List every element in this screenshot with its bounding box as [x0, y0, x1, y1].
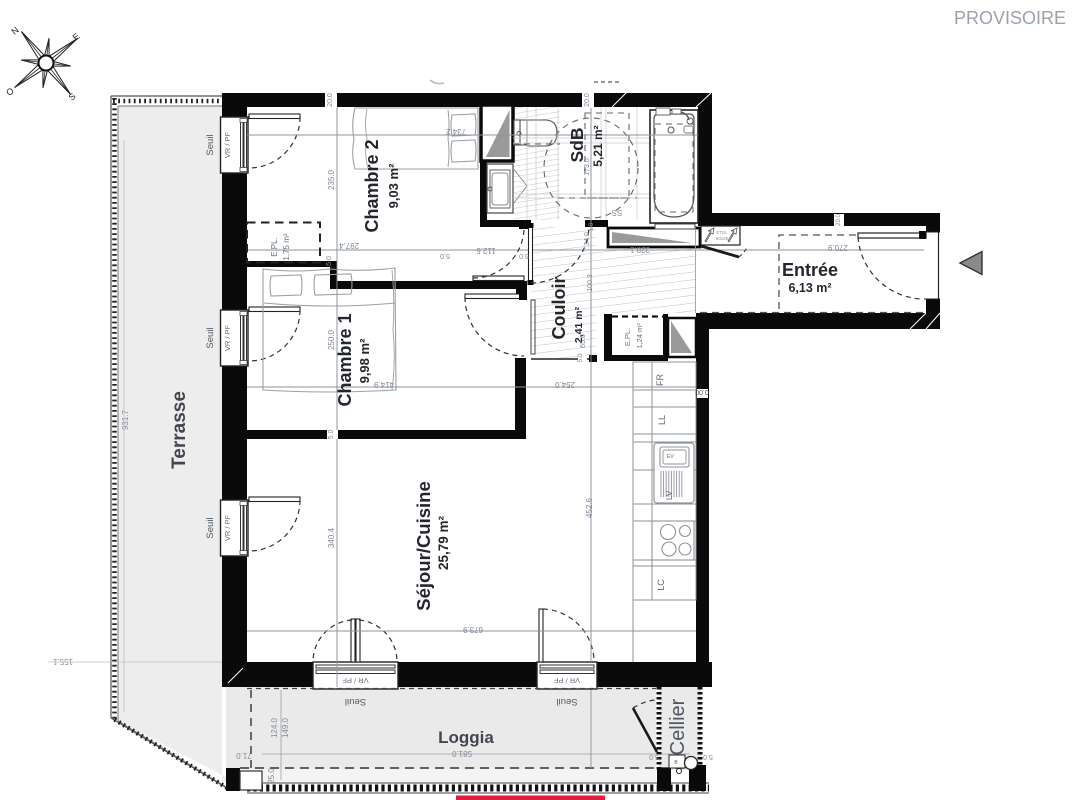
svg-text:9,98 m²: 9,98 m²	[357, 338, 372, 383]
svg-text:VR / PF: VR / PF	[553, 676, 580, 685]
svg-text:E.PL.: E.PL.	[623, 328, 632, 346]
svg-text:5.0: 5.0	[577, 353, 584, 362]
svg-text:Seuil: Seuil	[556, 696, 577, 707]
svg-text:235.0: 235.0	[327, 169, 336, 190]
svg-text:Seuil: Seuil	[205, 327, 216, 348]
svg-text:LC: LC	[656, 579, 666, 591]
svg-text:5.0: 5.0	[703, 753, 713, 760]
svg-text:5.0: 5.0	[519, 252, 529, 259]
svg-text:20.0: 20.0	[836, 214, 842, 226]
svg-text:Séjour/Cuisine: Séjour/Cuisine	[413, 481, 434, 611]
svg-text:Entrée: Entrée	[782, 260, 838, 280]
svg-text:34.0: 34.0	[584, 232, 591, 246]
svg-text:FR: FR	[655, 374, 665, 386]
svg-text:60x25: 60x25	[716, 236, 729, 241]
svg-text:VR / PF: VR / PF	[342, 676, 369, 685]
svg-text:E.PL.: E.PL.	[270, 237, 279, 257]
svg-text:Couloir: Couloir	[549, 277, 569, 340]
svg-text:297.4: 297.4	[338, 241, 359, 250]
svg-text:5.0: 5.0	[326, 256, 333, 266]
svg-text:673.9: 673.9	[462, 625, 483, 634]
svg-text:5.0: 5.0	[440, 252, 450, 259]
svg-text:155.1: 155.1	[52, 657, 73, 666]
svg-text:Loggia: Loggia	[438, 728, 494, 747]
svg-text:65.0: 65.0	[580, 334, 587, 348]
svg-text:173.0: 173.0	[584, 158, 591, 176]
svg-text:6,13 m²: 6,13 m²	[788, 281, 831, 295]
svg-text:5.0: 5.0	[649, 753, 659, 760]
svg-text:SdB: SdB	[567, 128, 587, 163]
svg-text:1,24 m³: 1,24 m³	[635, 323, 644, 349]
svg-text:Chambre 2: Chambre 2	[362, 139, 382, 232]
svg-text:Seuil: Seuil	[345, 696, 366, 707]
svg-text:Seuil: Seuil	[205, 134, 216, 155]
svg-text:ETEL: ETEL	[716, 230, 728, 235]
svg-text:340.4: 340.4	[327, 527, 336, 548]
svg-text:270.9: 270.9	[827, 243, 848, 252]
svg-text:100.3: 100.3	[587, 274, 594, 292]
svg-text:250.0: 250.0	[327, 329, 336, 350]
svg-text:581.0: 581.0	[451, 749, 472, 758]
svg-text:414.9: 414.9	[373, 380, 394, 389]
svg-text:LV: LV	[665, 490, 674, 500]
svg-text:20.0: 20.0	[327, 93, 334, 107]
svg-text:328.1: 328.1	[629, 245, 650, 254]
svg-text:LL: LL	[657, 415, 667, 425]
svg-text:Cellier: Cellier	[667, 698, 689, 755]
svg-text:1.0: 1.0	[589, 222, 595, 231]
svg-text:124.0: 124.0	[270, 717, 279, 738]
svg-text:5,21 m²: 5,21 m²	[591, 125, 605, 166]
svg-text:Seuil: Seuil	[205, 517, 216, 538]
svg-text:734.2: 734.2	[445, 127, 466, 136]
svg-text:452.6: 452.6	[585, 497, 594, 518]
svg-text:25,79 m²: 25,79 m²	[436, 515, 451, 570]
svg-text:1,75 m²: 1,75 m²	[282, 233, 291, 260]
svg-text:112.5: 112.5	[476, 246, 496, 255]
svg-text:149.0: 149.0	[281, 717, 290, 738]
svg-text:5.0: 5.0	[328, 430, 335, 440]
svg-text:71.0: 71.0	[236, 751, 252, 760]
svg-text:Terrasse: Terrasse	[169, 391, 190, 469]
svg-text:VR / PF: VR / PF	[223, 324, 232, 351]
svg-text:0.00: 0.00	[695, 388, 709, 395]
svg-text:VR / PF: VR / PF	[223, 514, 232, 541]
svg-text:PROVISOIRE: PROVISOIRE	[954, 8, 1066, 28]
svg-text:Chambre 1: Chambre 1	[335, 313, 355, 406]
svg-text:254.0: 254.0	[554, 380, 575, 389]
svg-text:25.0: 25.0	[267, 768, 276, 784]
svg-text:931.7: 931.7	[121, 409, 130, 430]
svg-text:20.0: 20.0	[584, 93, 591, 107]
svg-text:EV: EV	[667, 454, 674, 460]
svg-text:SS: SS	[612, 208, 623, 217]
svg-text:9,03 m²: 9,03 m²	[386, 163, 401, 208]
svg-text:VR / PF: VR / PF	[223, 131, 232, 158]
